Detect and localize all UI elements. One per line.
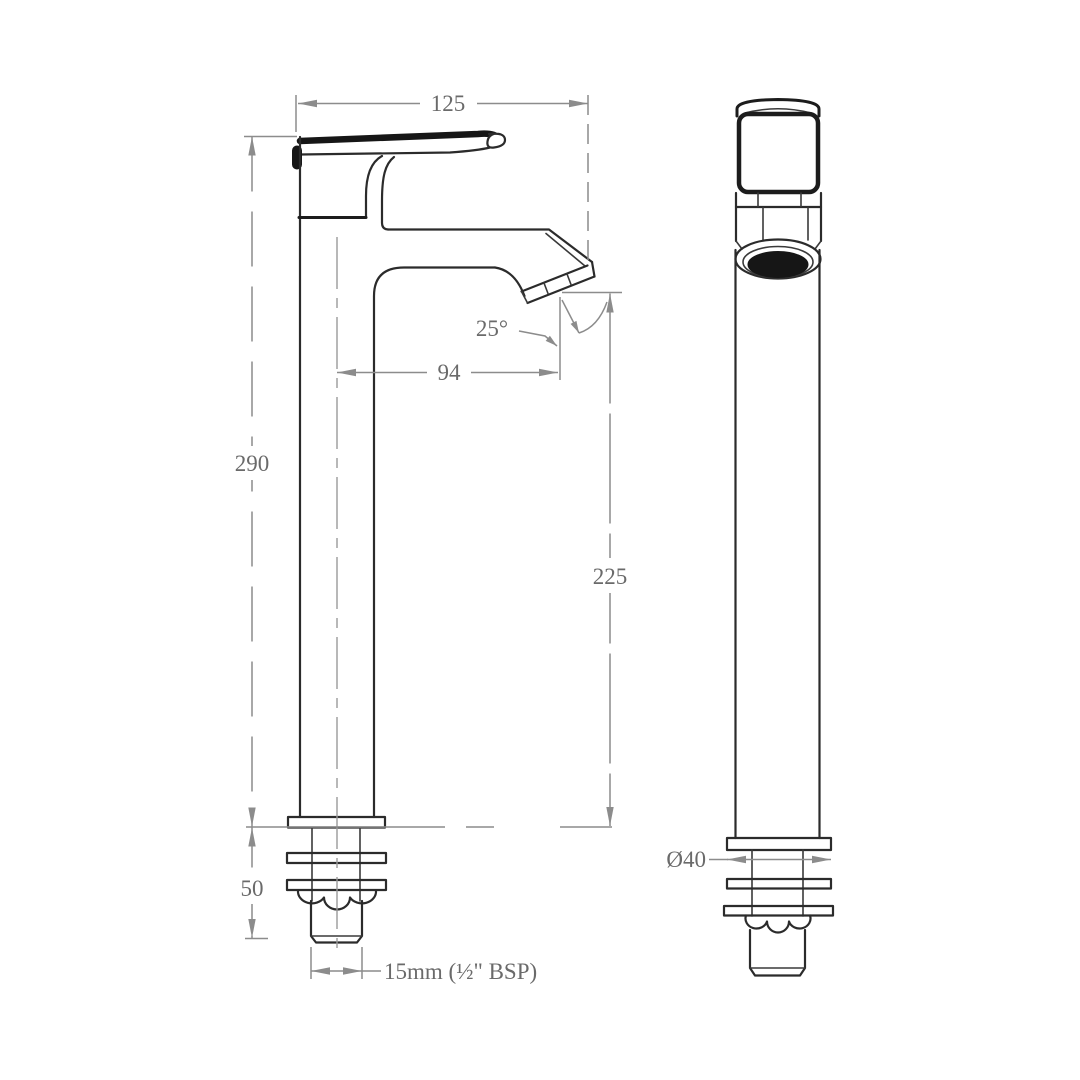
dim-inlet-thread: 15mm (½" BSP) xyxy=(311,947,537,984)
front-base xyxy=(724,838,833,976)
collar-band1-splines xyxy=(758,193,801,207)
spout-inner-line xyxy=(546,234,585,267)
side-lever-handle xyxy=(293,134,506,230)
angle-arc xyxy=(579,302,607,333)
side-body xyxy=(299,137,495,817)
dim225-label: 225 xyxy=(593,564,628,589)
dim94-label: 94 xyxy=(438,360,462,385)
front-view xyxy=(724,100,833,976)
aerator-upper-edge xyxy=(522,266,588,292)
lever-tip xyxy=(487,134,505,148)
tap-technical-drawing: 125 290 94 25° 225 xyxy=(0,0,1080,1080)
dim-outlet-angle: 25° xyxy=(476,300,607,346)
side-view xyxy=(287,134,595,949)
aerator-slat-divider-1 xyxy=(544,283,548,294)
side-aerator xyxy=(522,266,595,304)
dim-outlet-height: 225 xyxy=(562,293,633,827)
angle-arm xyxy=(562,300,579,333)
outlet-aerator-face xyxy=(748,252,808,278)
aerator-lower-edge xyxy=(528,277,595,304)
front-backnut xyxy=(745,916,810,933)
dim-shank-length: 50 xyxy=(234,828,270,939)
dim-lever-length: 125 xyxy=(296,89,588,262)
front-handle xyxy=(737,100,819,193)
front-washer-1 xyxy=(727,879,831,889)
collar-band2-splines xyxy=(763,208,808,241)
side-base xyxy=(287,237,386,948)
dim290-label: 290 xyxy=(235,451,270,476)
dim15-label: 15mm (½" BSP) xyxy=(384,959,537,984)
dim125-label: 125 xyxy=(431,91,466,116)
dia40-label: Ø40 xyxy=(666,847,706,872)
lever-neck-outer xyxy=(366,156,382,217)
spout-underside xyxy=(495,268,525,297)
front-body xyxy=(736,250,820,838)
angle-leader xyxy=(519,331,557,346)
aerator-slat-divider-2 xyxy=(567,274,571,285)
dim-spout-reach: 94 xyxy=(337,297,560,387)
lever-neck-inner xyxy=(382,157,394,230)
lever-top-edge xyxy=(300,134,494,141)
collar-band1 xyxy=(736,193,821,207)
front-washer-2 xyxy=(724,906,833,916)
front-base-flange xyxy=(727,838,831,850)
dim-overall-height: 290 xyxy=(231,137,297,827)
lever-bottom-edge xyxy=(300,148,490,155)
dim50-label: 50 xyxy=(241,876,264,901)
spout-tip-face xyxy=(592,262,595,277)
body-shoulder xyxy=(374,268,495,818)
drawing-canvas: 125 290 94 25° 225 xyxy=(0,0,1080,1080)
front-spout-outlet xyxy=(736,240,821,279)
angle-label: 25° xyxy=(476,316,508,341)
handle-face xyxy=(739,114,818,192)
